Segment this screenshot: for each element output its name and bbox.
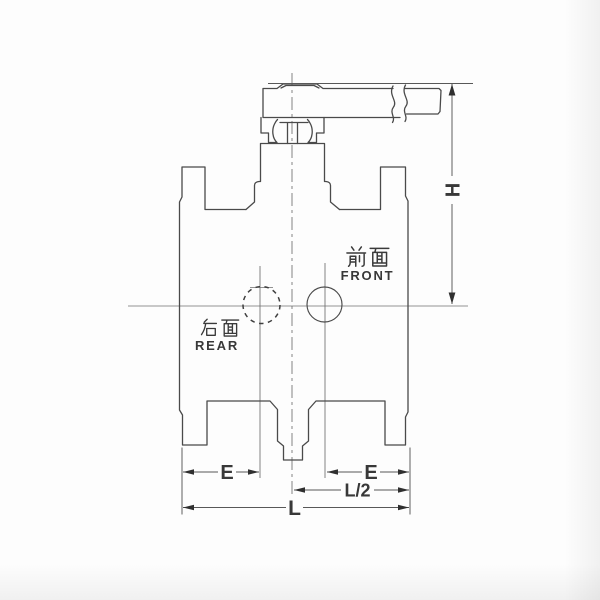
e-right-arrow-out	[398, 469, 409, 475]
gland-ear-right	[308, 118, 325, 143]
bonnet-outline	[246, 144, 340, 210]
front-en-text: FRONT	[341, 268, 395, 283]
l-arrow-right	[398, 505, 409, 511]
rear-en-text: REAR	[195, 338, 239, 353]
e-right-arrow-in	[327, 469, 338, 475]
h-arrow-up	[449, 84, 456, 96]
handle-right-part	[405, 89, 441, 115]
stem-section	[280, 123, 308, 144]
dimension-l: L	[183, 497, 409, 520]
valve-technical-drawing: H E E L/2	[0, 0, 600, 600]
e-left-arrow-in	[248, 469, 259, 475]
h-arrow-down	[449, 293, 456, 305]
dimension-e-left: E	[183, 461, 259, 484]
l-arrow-left	[183, 505, 194, 511]
gland-ear-left	[261, 118, 278, 143]
label-front: 前面 FRONT	[341, 246, 395, 283]
handle-lever	[263, 84, 441, 123]
handle-hub-inner-line	[281, 86, 319, 89]
valve-body	[180, 118, 409, 461]
drawing-canvas: H E E L/2	[0, 0, 600, 600]
l-label: L	[288, 497, 301, 520]
label-rear: 后面 REAR	[195, 317, 239, 353]
body-and-flanges-outline	[180, 167, 409, 460]
front-port-circle	[307, 287, 342, 322]
bottom-dimensions: E E L/2 L	[182, 448, 410, 521]
l-half-label: L/2	[344, 481, 370, 501]
rear-cn-text: 后面	[200, 317, 238, 339]
h-label: H	[443, 183, 465, 197]
l-half-arrow-right	[398, 487, 409, 493]
handle-break-squiggle-right	[404, 85, 407, 122]
front-cn-text: 前面	[346, 246, 388, 269]
handle-left-part	[263, 84, 400, 118]
e-left-arrow-out	[183, 469, 194, 475]
rear-port-circle-hidden	[243, 287, 280, 324]
dimension-l-half: L/2	[294, 480, 409, 501]
ports	[243, 287, 342, 324]
e-left-label: E	[220, 462, 233, 484]
l-half-arrow-left	[294, 487, 305, 493]
